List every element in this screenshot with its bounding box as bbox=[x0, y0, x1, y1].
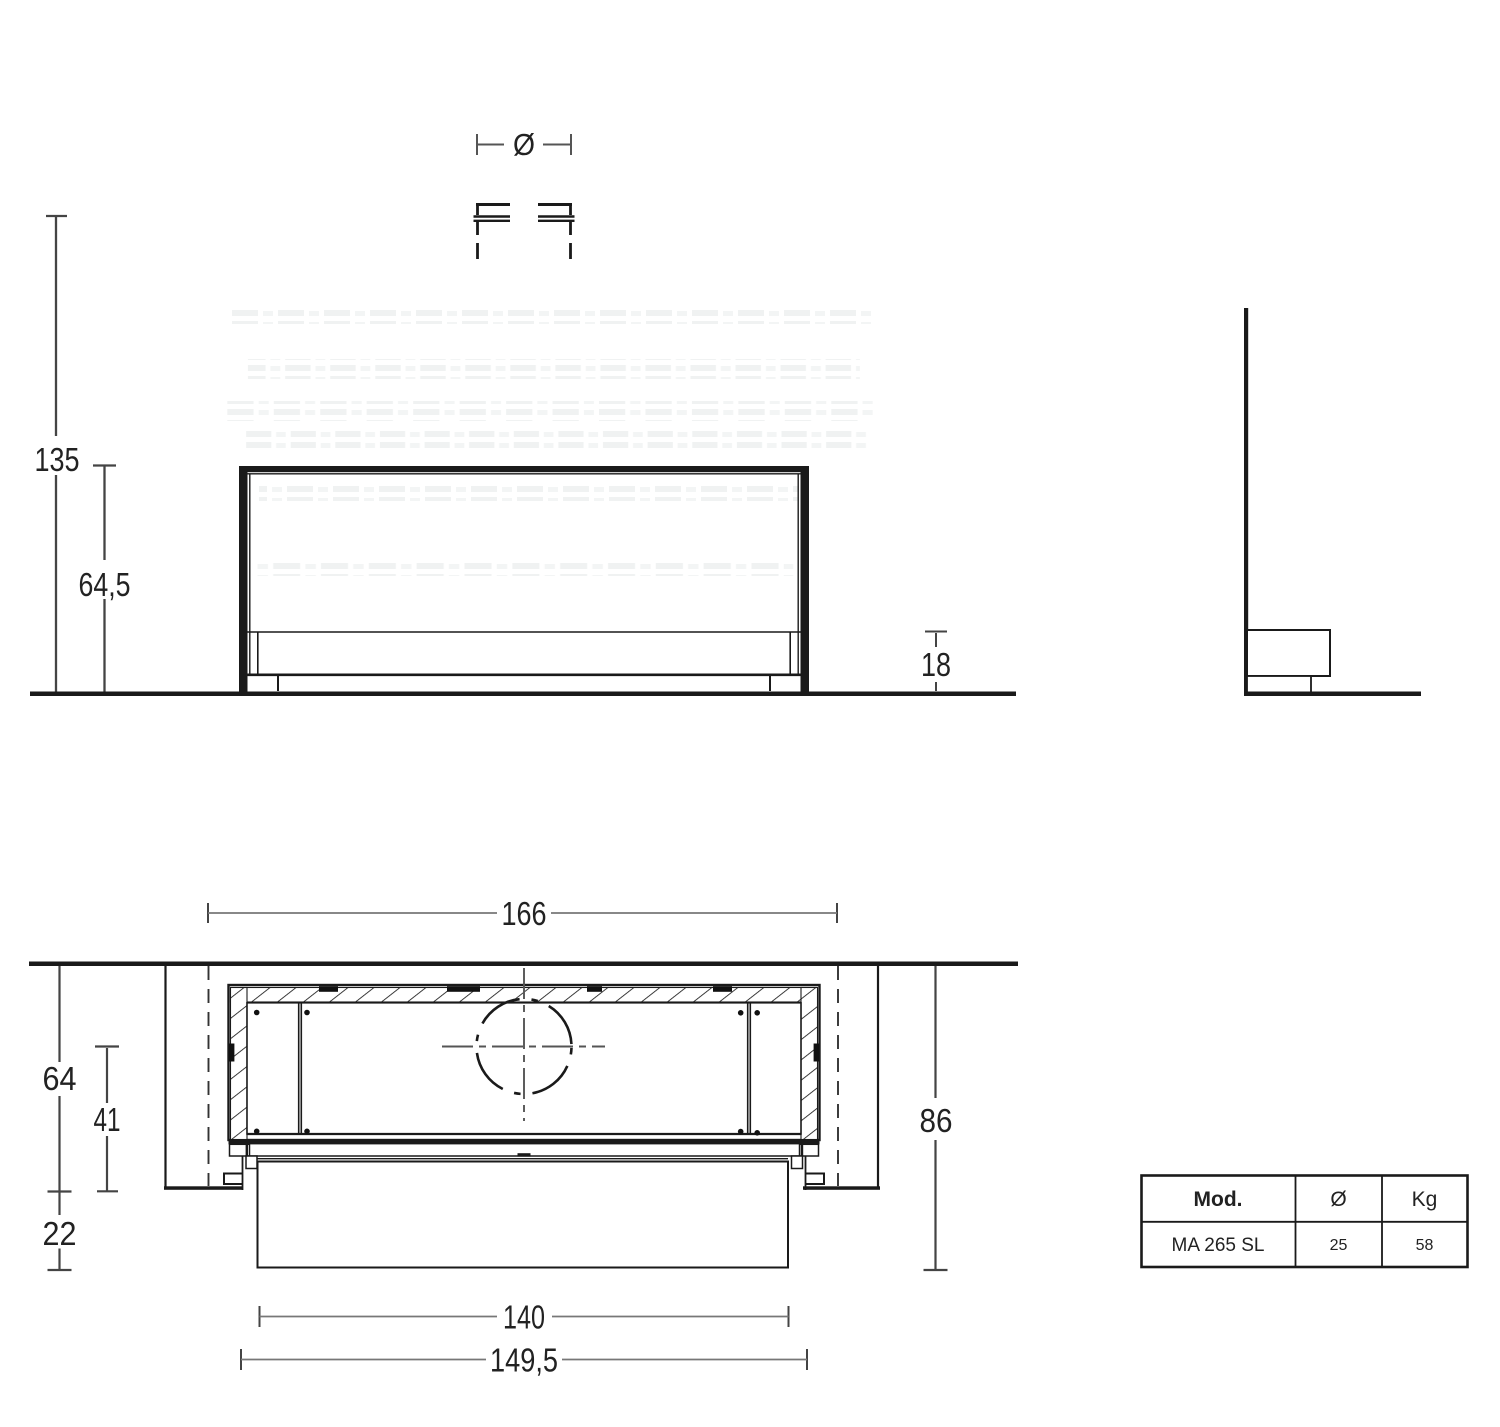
svg-text:25: 25 bbox=[1330, 1237, 1348, 1254]
svg-text:64: 64 bbox=[43, 1060, 77, 1097]
svg-text:MA 265 SL: MA 265 SL bbox=[1172, 1235, 1265, 1256]
svg-text:18: 18 bbox=[921, 646, 951, 683]
svg-text:166: 166 bbox=[502, 895, 547, 932]
svg-text:41: 41 bbox=[94, 1101, 121, 1138]
svg-text:Ø: Ø bbox=[513, 127, 535, 162]
svg-text:Kg: Kg bbox=[1412, 1188, 1438, 1211]
svg-text:135: 135 bbox=[35, 441, 80, 478]
svg-text:Ø: Ø bbox=[1330, 1188, 1346, 1211]
svg-text:22: 22 bbox=[43, 1215, 77, 1252]
svg-text:64,5: 64,5 bbox=[79, 566, 131, 603]
svg-text:149,5: 149,5 bbox=[490, 1342, 558, 1379]
svg-text:86: 86 bbox=[920, 1102, 953, 1139]
svg-text:58: 58 bbox=[1416, 1237, 1434, 1254]
svg-text:Mod.: Mod. bbox=[1194, 1188, 1243, 1211]
svg-text:140: 140 bbox=[503, 1299, 545, 1336]
